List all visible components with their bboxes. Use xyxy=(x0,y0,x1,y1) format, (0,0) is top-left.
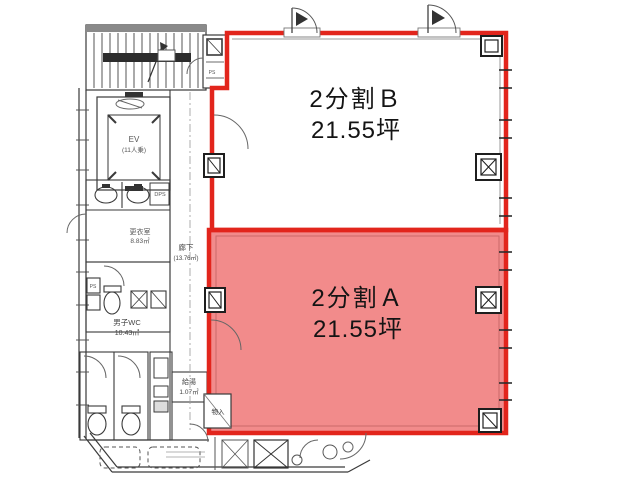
ps-label: PS xyxy=(90,284,97,290)
column-right-a xyxy=(476,287,501,313)
lower-wc-stalls xyxy=(80,352,172,440)
elevator-label: EV xyxy=(129,135,140,144)
kitchenette-label: 給湯 xyxy=(182,377,196,386)
column-bottom-right xyxy=(479,409,501,432)
column-top-right xyxy=(481,36,502,56)
kitchenette xyxy=(172,372,207,402)
corridor-area: (13.76㎡) xyxy=(173,254,198,262)
staircase xyxy=(86,25,206,90)
mens-wc-label: 男子WC xyxy=(113,318,141,327)
storage-label: 物入 xyxy=(212,407,226,416)
dps-label: DPS xyxy=(154,192,166,198)
changing-room-label: 更衣室 xyxy=(130,227,151,236)
column-right-b xyxy=(476,154,501,180)
column-left-a xyxy=(205,288,225,312)
changing-room-area: 8.83㎡ xyxy=(130,236,150,245)
corridor-label: 廊下 xyxy=(179,242,194,252)
column-left-b xyxy=(204,154,224,177)
kitchenette-area: 1.07㎡ xyxy=(179,387,199,396)
mens-wc-area: 10.43㎡ xyxy=(115,329,140,337)
top-ps-room xyxy=(187,35,228,88)
unit-b-name: 2分割Ｂ xyxy=(266,84,446,115)
unit-b-area: 21.55坪 xyxy=(266,115,446,146)
service-band xyxy=(100,437,337,470)
unit-a-name: 2分割Ａ xyxy=(268,283,448,314)
unit-a-label: 2分割Ａ 21.55坪 xyxy=(268,283,448,345)
floorplan-drawing: EV (11人乗) DPS 更衣室 8.83㎡ PS 男子WC 10.43㎡ xyxy=(0,0,640,480)
unit-a-area: 21.55坪 xyxy=(268,314,448,345)
unit-b-label: 2分割Ｂ 21.55坪 xyxy=(266,84,446,146)
elevator-capacity-label: (11人乗) xyxy=(122,145,146,154)
floorplan-canvas: EV (11人乗) DPS 更衣室 8.83㎡ PS 男子WC 10.43㎡ xyxy=(0,0,640,480)
top-ps-label: PS xyxy=(209,70,216,76)
